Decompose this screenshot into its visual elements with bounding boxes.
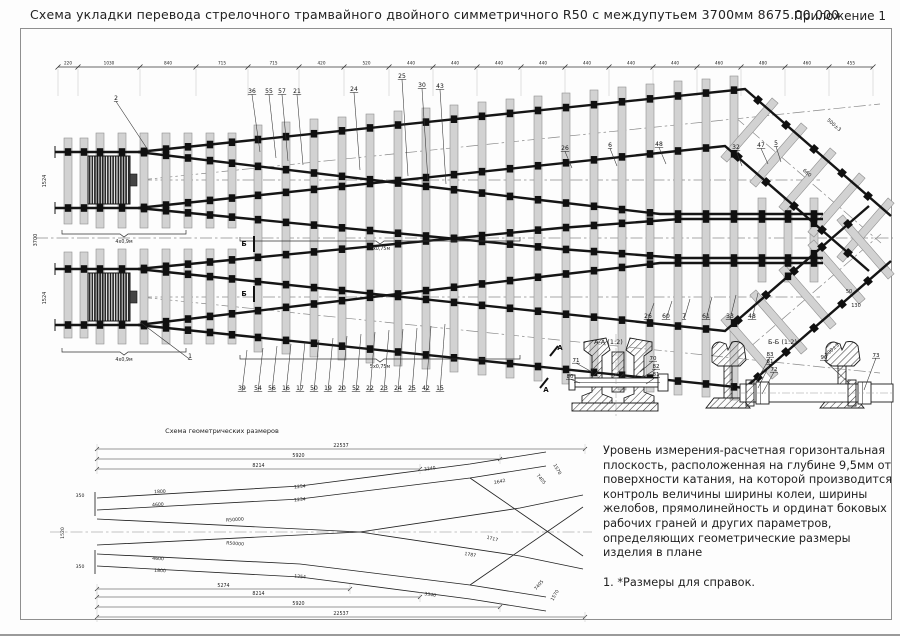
rotated-dim: 1524: [42, 175, 48, 188]
fastening: [283, 219, 289, 227]
fastening: [283, 281, 289, 289]
drawing-sheet: Схема укладки перевода стрелочного трамв…: [0, 0, 900, 636]
scheme-small-dim: 4600: [152, 556, 164, 563]
fastening: [81, 204, 87, 212]
fastening: [367, 227, 373, 235]
dim-value: 520: [363, 61, 371, 66]
fastening: [647, 319, 653, 327]
fastening: [395, 348, 401, 356]
callout-number: 42: [422, 385, 430, 392]
callout-number: 56: [268, 385, 276, 392]
scheme-small-dim: 4600: [152, 502, 164, 509]
scheme-small-dim: 1800: [154, 489, 166, 496]
callout-number: 43: [436, 83, 444, 90]
fastening: [339, 127, 345, 135]
scheme-dim-value: 22537: [333, 611, 348, 617]
fastening: [311, 221, 317, 229]
fastening: [229, 275, 235, 283]
brace: [62, 230, 186, 237]
fastening: [703, 215, 709, 223]
fastening: [451, 299, 457, 307]
cut-letter: А: [557, 344, 563, 352]
fastening: [563, 159, 569, 167]
fastening: [451, 283, 457, 291]
rotated-dim: 1524: [42, 292, 48, 305]
fastening: [97, 265, 103, 273]
callout-number: 19: [324, 385, 332, 392]
callout-number: 7: [682, 313, 686, 320]
fastening: [507, 193, 513, 201]
fastening: [619, 220, 625, 228]
fastening: [479, 232, 485, 240]
fastening: [675, 259, 681, 267]
scheme-small-dim: 7405: [533, 579, 545, 592]
fastening: [395, 121, 401, 129]
fastening: [451, 354, 457, 362]
rotated-dim: 130: [851, 303, 861, 309]
fastening: [367, 345, 373, 353]
dim-value: 840: [164, 61, 172, 66]
fastening: [479, 302, 485, 310]
callout-leader: [659, 148, 666, 165]
fastening: [185, 199, 191, 207]
callout-number: 24: [394, 385, 402, 392]
extension-lines: [58, 69, 873, 96]
fastening: [423, 287, 429, 295]
scheme-small-dim: 1787: [464, 551, 477, 559]
switch-machine-top: [88, 156, 137, 204]
fastening: [785, 259, 791, 267]
fastening: [207, 273, 213, 281]
callout-number: 47: [757, 142, 765, 149]
rotated-dim: 3700: [33, 234, 39, 247]
callout-number: 52: [352, 385, 360, 392]
scheme-small-dim: 350: [76, 493, 85, 499]
fastening: [479, 280, 485, 288]
fastening: [207, 141, 213, 149]
dim-value: 440: [539, 61, 547, 66]
fastening: [65, 321, 71, 329]
fastening: [507, 110, 513, 118]
fastening: [647, 217, 653, 225]
fastening: [507, 165, 513, 173]
sleeper: [534, 96, 542, 381]
fastening: [185, 326, 191, 334]
fastening: [311, 130, 317, 138]
dim-value: 715: [218, 61, 226, 66]
fastening: [339, 287, 345, 295]
fastening: [591, 222, 597, 230]
fastening: [163, 207, 169, 215]
fastening: [479, 112, 485, 120]
scheme-line: [470, 507, 583, 585]
callout-number: 23: [380, 385, 388, 392]
fastening: [311, 300, 317, 308]
fastening: [207, 157, 213, 165]
callout-number: 1: [188, 353, 192, 360]
fastening: [507, 277, 513, 285]
scheme-line: [97, 519, 583, 569]
sleeper: [282, 122, 290, 354]
fastening: [647, 150, 653, 158]
scheme-title: Схема геометрических размеров: [165, 427, 279, 435]
fastening: [811, 215, 817, 223]
fastening: [255, 163, 261, 171]
fastening: [479, 357, 485, 365]
dim-value: 420: [318, 61, 326, 66]
fastening: [311, 284, 317, 292]
fastening: [591, 313, 597, 321]
dim-value: 1030: [104, 61, 115, 66]
callout-number: 6: [608, 142, 612, 149]
fastening: [119, 265, 125, 273]
fastening: [647, 209, 653, 217]
callout-number: 25: [408, 385, 416, 392]
scheme-small-dim: 3340: [424, 591, 436, 599]
scheme-dim-value: 8214: [252, 591, 264, 597]
callout-number: 25: [398, 73, 406, 80]
geometric-scheme: Схема геометрических размеров 2253759208…: [50, 427, 592, 622]
sleeper: [394, 111, 402, 366]
fastening: [339, 224, 345, 232]
fastening: [535, 307, 541, 315]
fastening: [811, 259, 817, 267]
sleeper: [254, 125, 262, 352]
callout-number: 54: [254, 385, 262, 392]
notes-block: Уровень измерения-расчетная горизонтальн…: [603, 444, 895, 590]
fastening: [229, 138, 235, 146]
fastening: [675, 377, 681, 385]
diagonal-sleeper: [721, 98, 778, 162]
fastening: [97, 321, 103, 329]
fastening: [185, 209, 191, 217]
dim-value: 440: [583, 61, 591, 66]
fastening: [141, 149, 147, 157]
fastening: [563, 270, 569, 278]
dim-value: 440: [671, 61, 679, 66]
sleeper: [338, 117, 346, 360]
reference-note: 1. *Размеры для справок.: [603, 576, 895, 591]
fastening: [119, 321, 125, 329]
callout-number: 50: [310, 385, 318, 392]
fastening: [591, 267, 597, 275]
brace-label: 5х0,75м: [370, 364, 391, 370]
fastening: [229, 331, 235, 339]
fastening: [759, 215, 765, 223]
scheme-dim-value: 5274: [217, 583, 229, 589]
fastening: [339, 245, 345, 253]
fastening: [229, 194, 235, 202]
scheme-small-dim: 3340: [424, 465, 436, 473]
fastening: [535, 243, 541, 251]
fastening: [229, 159, 235, 167]
callout-number: 32: [732, 144, 740, 151]
fastening: [207, 313, 213, 321]
fastening: [785, 273, 791, 281]
fastening: [563, 366, 569, 374]
fastening: [563, 246, 569, 254]
fastening: [367, 293, 373, 301]
fastening: [619, 264, 625, 272]
fastening: [731, 259, 737, 267]
callout-leader: [402, 80, 408, 177]
brace-label: 4х0,9м: [115, 357, 133, 363]
fastening: [619, 206, 625, 214]
callout-number: 61: [702, 313, 710, 320]
callout-number: 26: [644, 313, 652, 320]
fastening: [591, 156, 597, 164]
cut-letter: Б: [241, 240, 246, 248]
fastening: [185, 154, 191, 162]
fastening: [185, 143, 191, 151]
fastening: [619, 98, 625, 106]
fastening: [785, 215, 791, 223]
fastening: [423, 183, 429, 191]
scheme-dim-value: 8214: [252, 463, 264, 469]
fastening: [535, 363, 541, 371]
fastening: [703, 89, 709, 97]
fastening: [703, 380, 709, 388]
fastening: [311, 169, 317, 177]
fastening: [185, 315, 191, 323]
scheme-small-dim: 1520: [60, 527, 66, 539]
fastening: [97, 148, 103, 156]
callout-number: 48: [655, 141, 663, 148]
callout-number: 57: [278, 88, 286, 95]
dim-value: 440: [495, 61, 503, 66]
fastening: [535, 107, 541, 115]
fastening: [97, 204, 103, 212]
fastening: [507, 304, 513, 312]
callout-number: 55: [265, 88, 273, 95]
sleeper: [310, 119, 318, 357]
scheme-small-dim: 1800: [154, 568, 166, 575]
fastening: [563, 104, 569, 112]
callout-number: 33: [726, 313, 734, 320]
brace-label: 4х0,9м: [115, 239, 133, 245]
fastening: [647, 252, 653, 260]
fastening: [339, 342, 345, 350]
scheme-line: [97, 554, 546, 597]
fastening: [395, 229, 401, 237]
scheme-line: [97, 495, 583, 545]
fastening: [423, 351, 429, 359]
rotated-dim: 50: [846, 289, 852, 295]
callout-leader: [269, 95, 276, 159]
fastening: [229, 310, 235, 318]
dim-value: 480: [759, 61, 767, 66]
dim-value: 715: [270, 61, 278, 66]
fastening: [185, 270, 191, 278]
fastening: [703, 259, 709, 267]
scheme-line: [97, 466, 546, 510]
rail: [55, 146, 869, 271]
fastening: [591, 248, 597, 256]
callout-number: 39: [238, 385, 246, 392]
fastening: [207, 197, 213, 205]
switch-machine-bottom: [88, 273, 137, 321]
brace: [62, 348, 186, 355]
fastening: [451, 115, 457, 123]
fastening: [283, 337, 289, 345]
scheme-small-dim: 1234: [294, 496, 306, 503]
dim-value: 440: [451, 61, 459, 66]
fastening: [141, 205, 147, 213]
fastening: [507, 360, 513, 368]
fastening: [255, 307, 261, 315]
sleeper: [140, 133, 148, 228]
rail: [55, 206, 869, 331]
fastening: [185, 260, 191, 268]
fastening: [563, 199, 569, 207]
callout-number: 22: [366, 385, 374, 392]
callout-number: 16: [282, 385, 290, 392]
dim-value: 460: [715, 61, 723, 66]
fastening: [451, 171, 457, 179]
fastening: [311, 186, 317, 194]
fastening: [451, 186, 457, 194]
fastening: [675, 215, 681, 223]
callout-number: 21: [293, 88, 301, 95]
measurement-note: Уровень измерения-расчетная горизонтальн…: [603, 444, 895, 561]
fastening: [163, 318, 169, 326]
fastening: [81, 148, 87, 156]
fastening: [65, 204, 71, 212]
scheme-small-dim: 1254: [294, 483, 306, 490]
fastening: [675, 92, 681, 100]
callout-leader: [761, 149, 768, 165]
callout-leader: [440, 90, 446, 185]
dim-value: 440: [627, 61, 635, 66]
fastening: [479, 168, 485, 176]
fastening: [367, 176, 373, 184]
cut-letter: А: [543, 386, 549, 394]
callout-number: 2: [114, 95, 118, 102]
callout-leader: [384, 330, 389, 392]
fastening: [591, 203, 597, 211]
fastening: [423, 174, 429, 182]
fastening: [255, 216, 261, 224]
fastening: [207, 211, 213, 219]
fastening: [535, 162, 541, 170]
fastening: [283, 251, 289, 259]
fastening: [339, 183, 345, 191]
callout-number: 30: [418, 82, 426, 89]
callout-number: 36: [248, 88, 256, 95]
fastening: [423, 296, 429, 304]
callout-number: 20: [338, 385, 346, 392]
callout-leader: [354, 93, 360, 171]
fastening: [367, 124, 373, 132]
fastening: [619, 316, 625, 324]
fastening: [207, 258, 213, 266]
section-bb-label: Б-Б (1:2): [768, 338, 797, 346]
callout-number: 15: [436, 385, 444, 392]
fastening: [163, 262, 169, 270]
dimension-chain: 2201030840715715420520440440440440440440…: [56, 61, 876, 70]
fastening: [563, 224, 569, 232]
fastening: [675, 147, 681, 155]
fastening: [731, 86, 737, 94]
cut-letter: Б: [241, 290, 246, 298]
fastening: [311, 339, 317, 347]
fastening: [141, 265, 147, 273]
fastening: [675, 322, 681, 330]
fastening: [207, 329, 213, 337]
scheme-dim-value: 22537: [333, 443, 348, 449]
fastening: [619, 250, 625, 258]
scheme-small-dim: 1717: [486, 535, 499, 544]
fastening: [119, 204, 125, 212]
fastening: [647, 260, 653, 268]
fastening: [283, 304, 289, 312]
fastening: [119, 148, 125, 156]
fastening: [647, 95, 653, 103]
scheme-dim-value: 5920: [292, 601, 304, 607]
fastening: [395, 290, 401, 298]
sleeper: [366, 114, 374, 363]
fastening: [535, 273, 541, 281]
scheme-line: [470, 478, 583, 556]
scheme-small-dim: R50000: [226, 516, 244, 523]
callout-leader: [412, 328, 417, 392]
dim-value: 440: [407, 61, 415, 66]
fastening: [81, 265, 87, 273]
scheme-small-dim: 7405: [535, 473, 547, 486]
callout-number: 26: [561, 145, 569, 152]
fastening: [163, 152, 169, 160]
fastening: [65, 265, 71, 273]
scheme-small-dim: 350: [76, 564, 85, 570]
fastening: [283, 166, 289, 174]
scheme-small-dim: 1570: [551, 463, 562, 476]
dim-value: 460: [803, 61, 811, 66]
scheme-small-dim: 1254: [294, 574, 306, 581]
callout-number: 60: [662, 313, 670, 320]
fastening: [563, 310, 569, 318]
fastening: [731, 215, 737, 223]
sleeper: [702, 79, 710, 397]
scheme-small-dim: R50000: [226, 540, 244, 547]
fastening: [311, 248, 317, 256]
fastening: [339, 173, 345, 181]
scheme-dim-value: 5920: [292, 453, 304, 459]
sleeper: [562, 93, 570, 384]
fastening: [255, 278, 261, 286]
dim-value: 220: [64, 61, 72, 66]
fastening: [395, 179, 401, 187]
sleeper: [506, 99, 514, 378]
fastening: [255, 254, 261, 262]
fastening: [229, 256, 235, 264]
scheme-small-dim: 2642: [493, 478, 506, 486]
fastening: [619, 153, 625, 161]
fastening: [703, 325, 709, 333]
callout-number: 17: [296, 385, 304, 392]
fastening: [507, 240, 513, 248]
fastening: [759, 259, 765, 267]
sleeper: [674, 81, 682, 395]
fastening: [535, 196, 541, 204]
fastening: [479, 189, 485, 197]
rail: [55, 89, 891, 216]
brace-label: 5х0,75м: [370, 246, 391, 252]
fastening: [535, 226, 541, 234]
fastening: [811, 250, 817, 258]
scheme-small-dim: 1570: [550, 589, 561, 602]
fastening: [229, 213, 235, 221]
dim-value: 455: [847, 61, 855, 66]
